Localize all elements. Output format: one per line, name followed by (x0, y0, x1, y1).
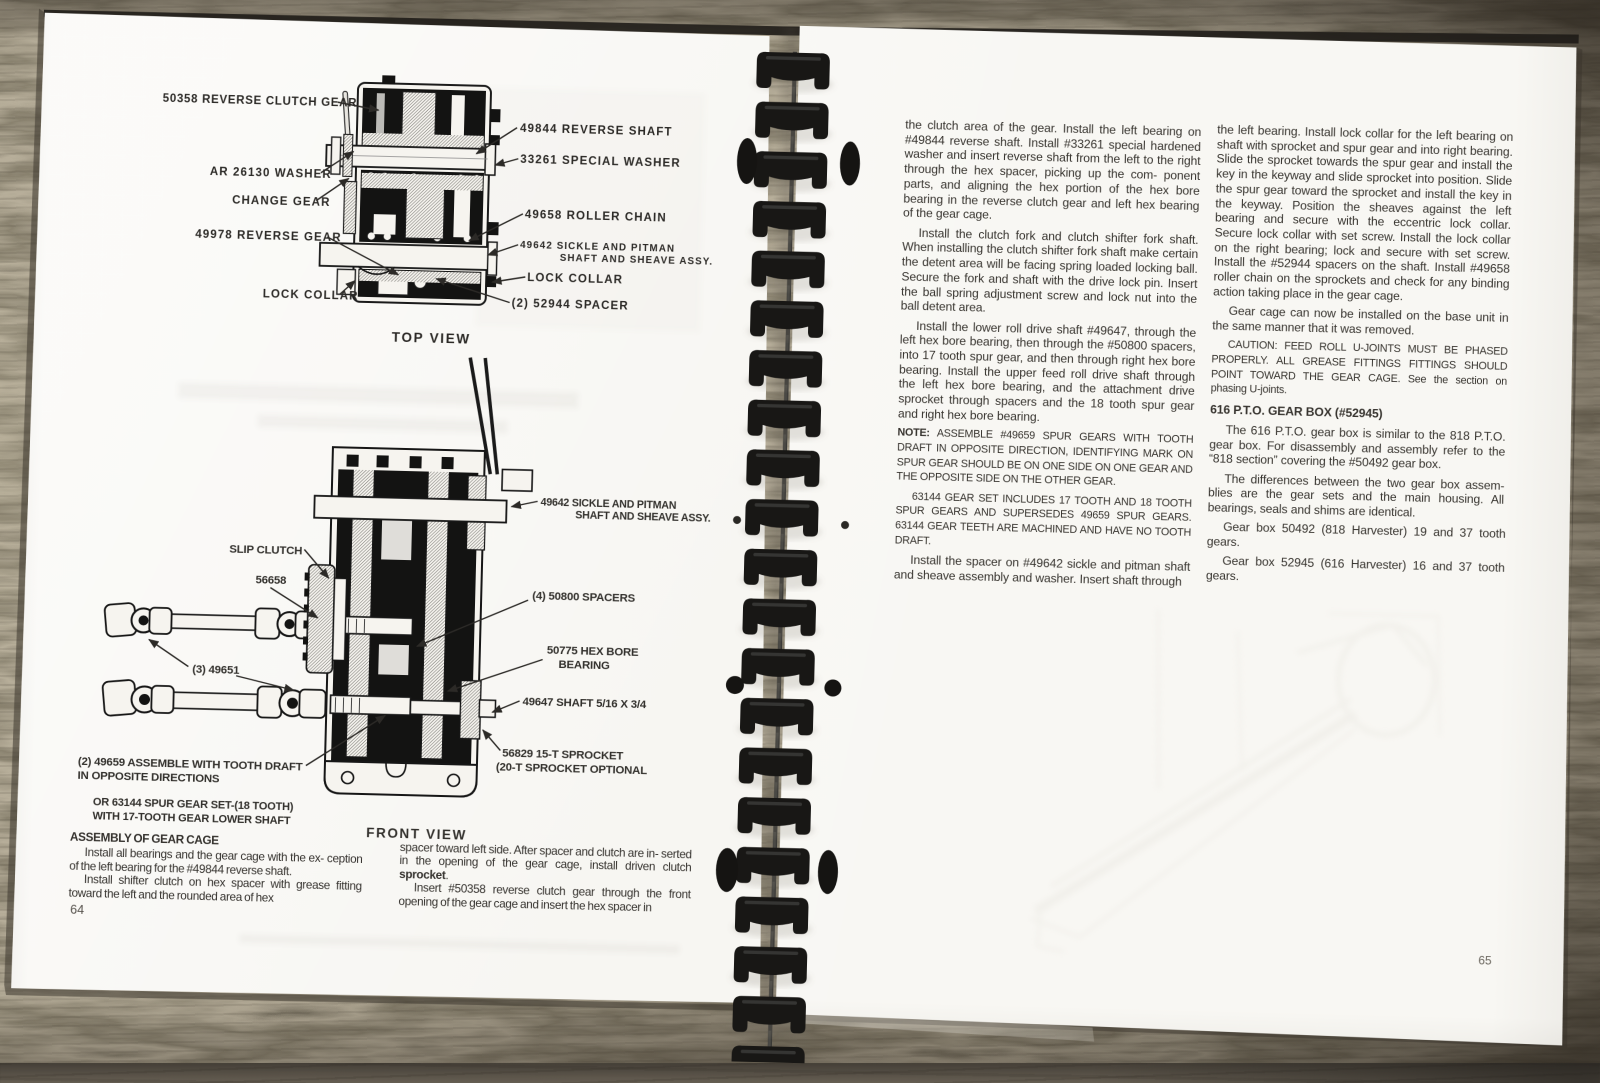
svg-text:AR 26130 WASHER: AR 26130 WASHER (210, 166, 332, 181)
svg-text:WITH 17-TOOTH GEAR LOWER SHAFT: WITH 17-TOOTH GEAR LOWER SHAFT (92, 810, 291, 827)
svg-text:50775 HEX BORE: 50775 HEX BORE (547, 645, 639, 659)
svg-text:SHAFT AND SHEAVE ASSY.: SHAFT AND SHEAVE ASSY. (575, 509, 711, 524)
svg-text:49647 SHAFT 5/16 X 3/4: 49647 SHAFT 5/16 X 3/4 (522, 696, 647, 711)
svg-text:56829 15-T SPROCKET: 56829 15-T SPROCKET (502, 748, 623, 763)
svg-text:CHANGE GEAR: CHANGE GEAR (232, 195, 331, 209)
svg-text:LOCK COLLAR: LOCK COLLAR (527, 272, 623, 286)
svg-text:TOP VIEW: TOP VIEW (392, 330, 471, 347)
svg-text:50358 REVERSE CLUTCH GEAR: 50358 REVERSE CLUTCH GEAR (163, 93, 358, 110)
svg-text:(3) 49651: (3) 49651 (192, 664, 240, 677)
svg-text:56658: 56658 (255, 574, 286, 587)
svg-text:(20-T SPROCKET OPTIONAL: (20-T SPROCKET OPTIONAL (496, 761, 648, 777)
svg-text:49978 REVERSE GEAR: 49978 REVERSE GEAR (195, 229, 342, 245)
svg-text:IN OPPOSITE DIRECTIONS: IN OPPOSITE DIRECTIONS (77, 770, 220, 786)
svg-text:FRONT VIEW: FRONT VIEW (366, 825, 467, 843)
svg-text:SLIP CLUTCH: SLIP CLUTCH (229, 544, 302, 558)
svg-text:BEARING: BEARING (558, 659, 610, 672)
svg-text:(4) 50800 SPACERS: (4) 50800 SPACERS (532, 590, 636, 605)
